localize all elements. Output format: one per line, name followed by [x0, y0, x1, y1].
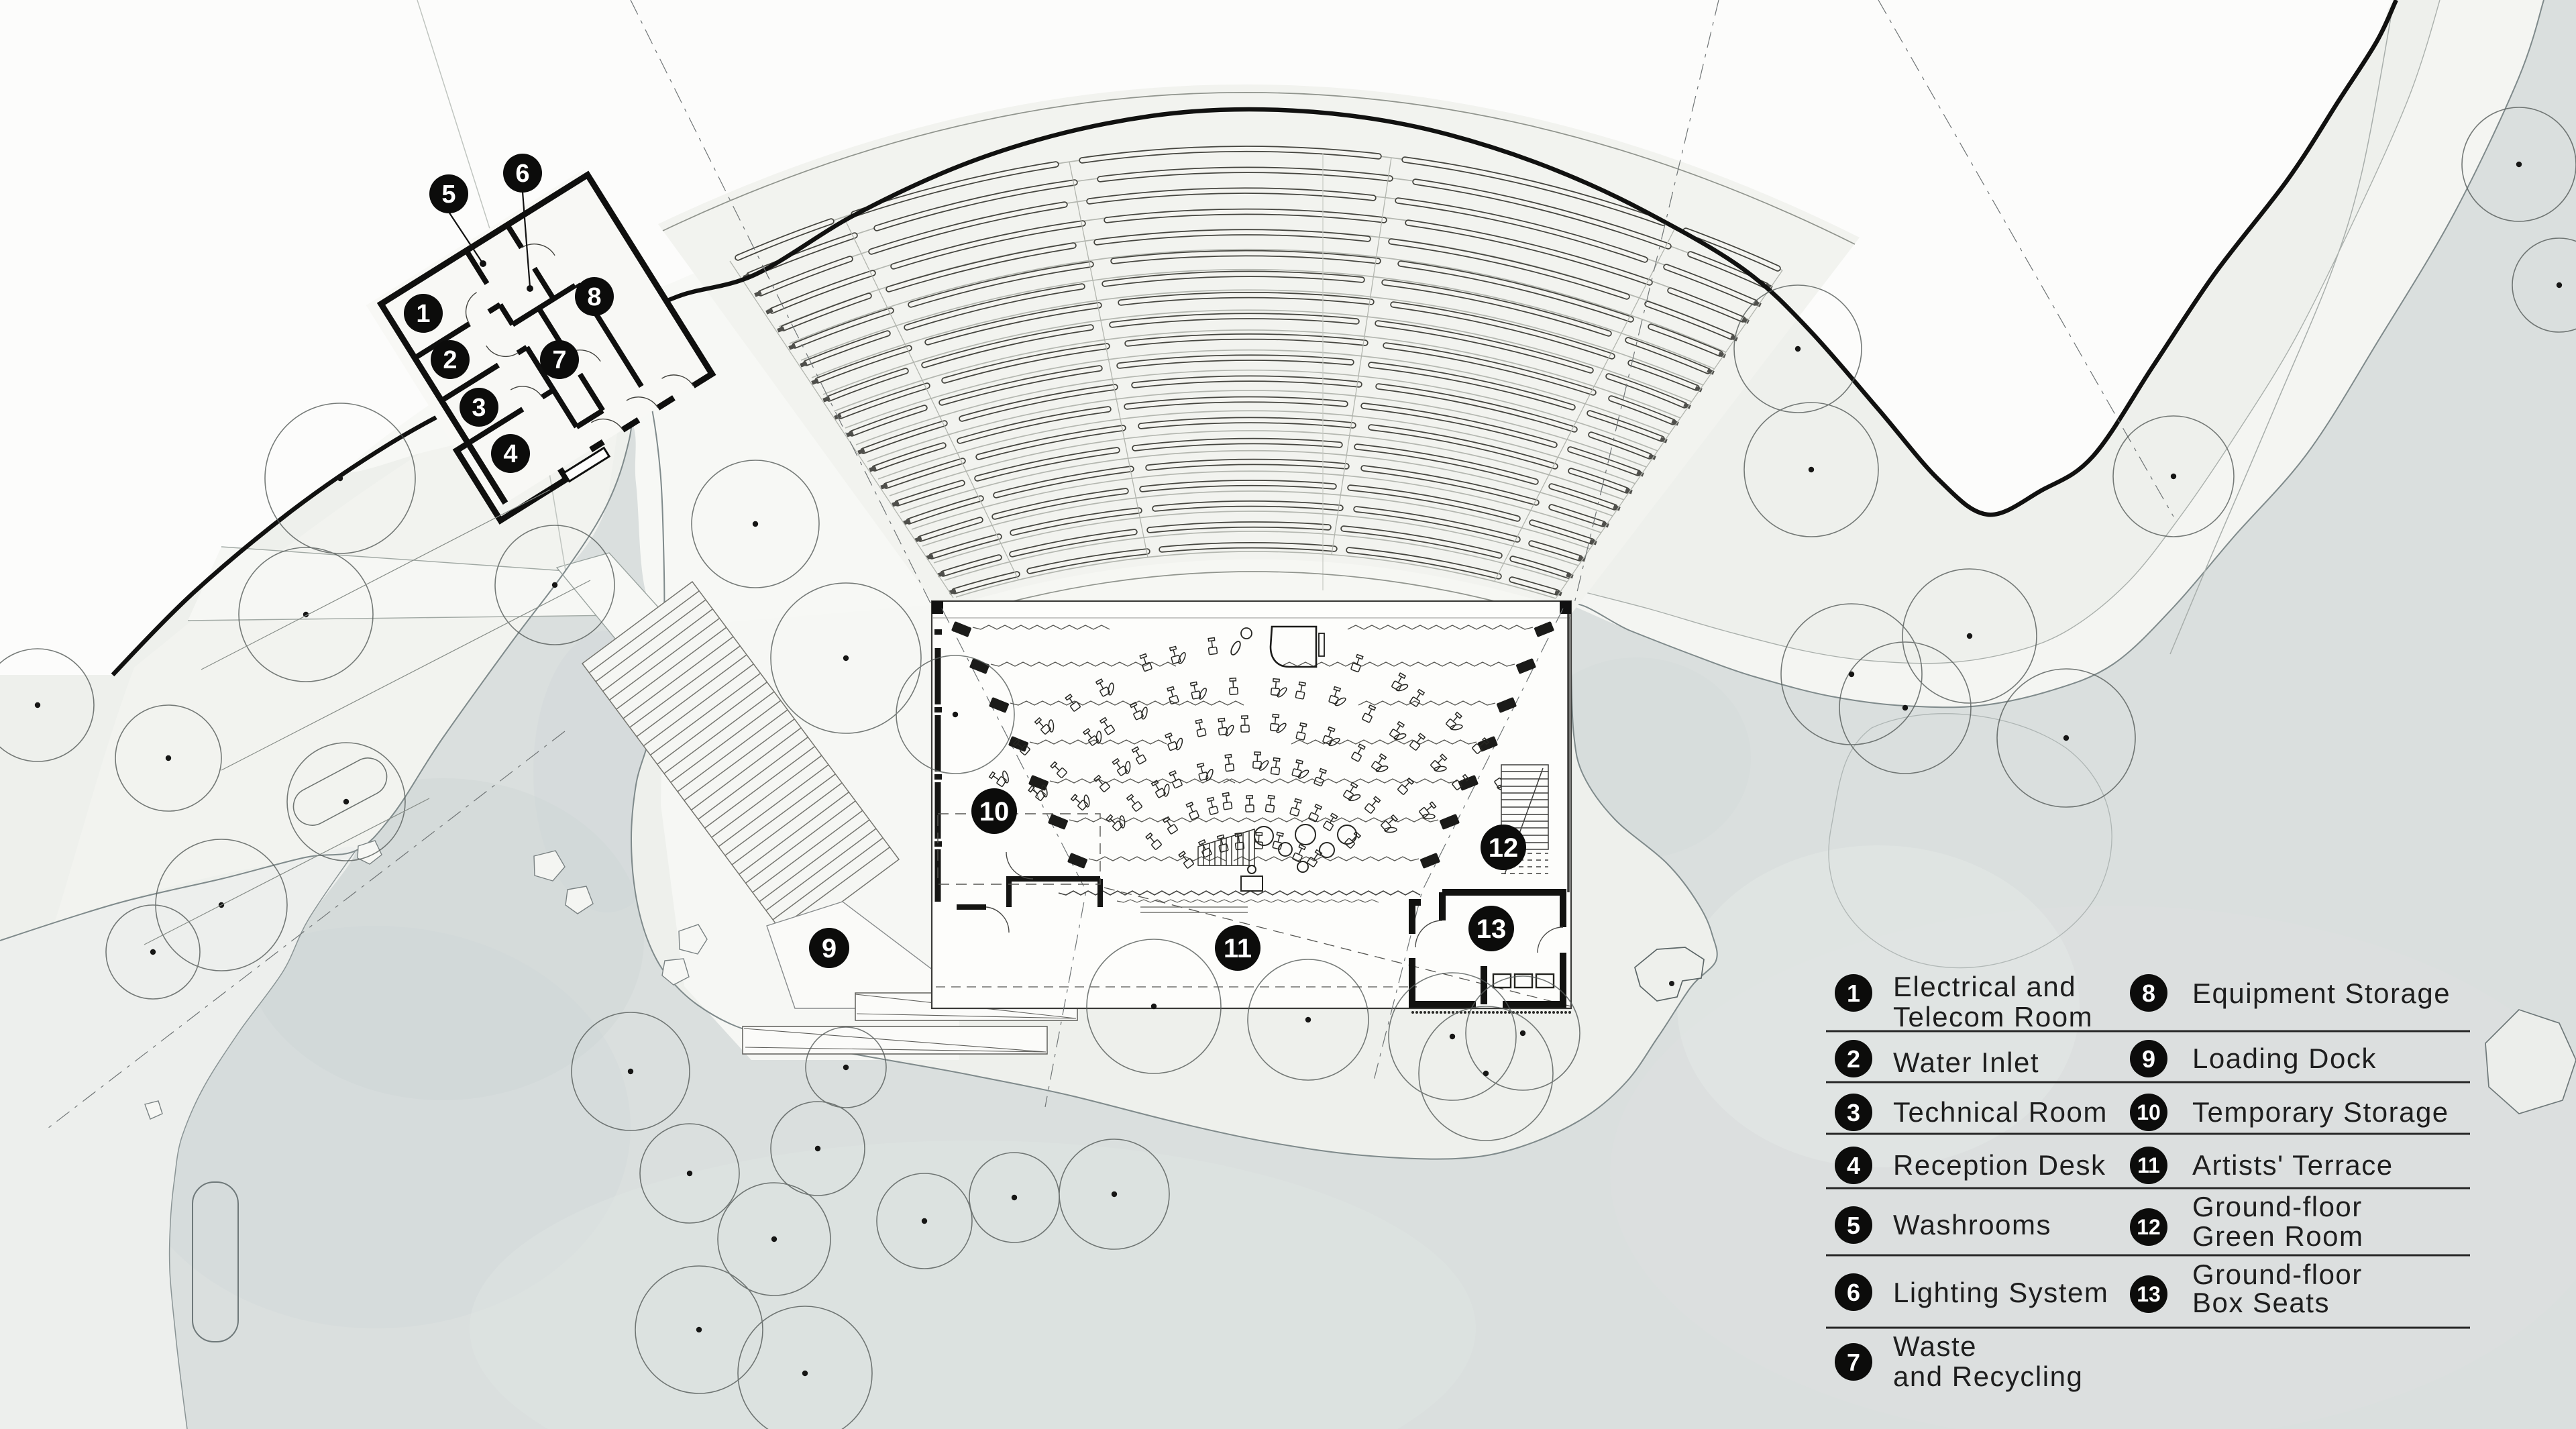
svg-text:Green Room: Green Room — [2192, 1220, 2363, 1252]
svg-text:9: 9 — [822, 934, 837, 963]
svg-text:10: 10 — [2137, 1100, 2161, 1124]
svg-text:4: 4 — [1847, 1152, 1860, 1179]
svg-text:6: 6 — [515, 160, 529, 188]
svg-text:13: 13 — [1477, 914, 1507, 944]
svg-text:7: 7 — [552, 346, 566, 374]
svg-text:4: 4 — [503, 440, 517, 468]
svg-text:Artists' Terrace: Artists' Terrace — [2192, 1149, 2394, 1181]
svg-text:Box Seats: Box Seats — [2192, 1287, 2330, 1318]
svg-text:Waste: Waste — [1893, 1330, 1977, 1362]
svg-text:3: 3 — [1847, 1099, 1860, 1126]
svg-text:10: 10 — [979, 797, 1010, 827]
svg-text:Telecom Room: Telecom Room — [1893, 1001, 2093, 1033]
svg-text:Ground-floor: Ground-floor — [2192, 1191, 2363, 1222]
svg-text:Lighting System: Lighting System — [1893, 1277, 2108, 1308]
svg-text:and Recycling: and Recycling — [1893, 1361, 2083, 1392]
svg-text:3: 3 — [472, 394, 486, 422]
svg-text:Temporary Storage: Temporary Storage — [2192, 1096, 2449, 1128]
svg-text:1: 1 — [416, 300, 430, 328]
svg-text:8: 8 — [2142, 980, 2155, 1007]
svg-text:12: 12 — [1489, 833, 1519, 863]
svg-text:12: 12 — [2137, 1215, 2161, 1239]
svg-text:2: 2 — [1847, 1045, 1860, 1073]
svg-text:5: 5 — [441, 180, 455, 209]
svg-text:9: 9 — [2142, 1045, 2155, 1073]
svg-text:Loading Dock: Loading Dock — [2192, 1043, 2377, 1074]
svg-text:Equipment Storage: Equipment Storage — [2192, 977, 2451, 1009]
svg-text:Technical Room: Technical Room — [1893, 1096, 2108, 1128]
svg-text:Ground-floor: Ground-floor — [2192, 1259, 2363, 1290]
svg-text:7: 7 — [1847, 1348, 1860, 1376]
svg-text:Washrooms: Washrooms — [1893, 1209, 2051, 1240]
svg-text:2: 2 — [443, 346, 457, 374]
svg-text:11: 11 — [1224, 934, 1252, 963]
svg-text:8: 8 — [587, 283, 601, 311]
svg-text:Electrical and: Electrical and — [1893, 971, 2076, 1002]
svg-text:11: 11 — [2137, 1153, 2160, 1177]
svg-text:Reception Desk: Reception Desk — [1893, 1149, 2106, 1181]
svg-text:1: 1 — [1847, 980, 1860, 1007]
svg-text:6: 6 — [1847, 1279, 1860, 1306]
svg-text:Water Inlet: Water Inlet — [1893, 1047, 2039, 1078]
svg-text:5: 5 — [1847, 1212, 1860, 1239]
svg-text:13: 13 — [2137, 1282, 2161, 1306]
